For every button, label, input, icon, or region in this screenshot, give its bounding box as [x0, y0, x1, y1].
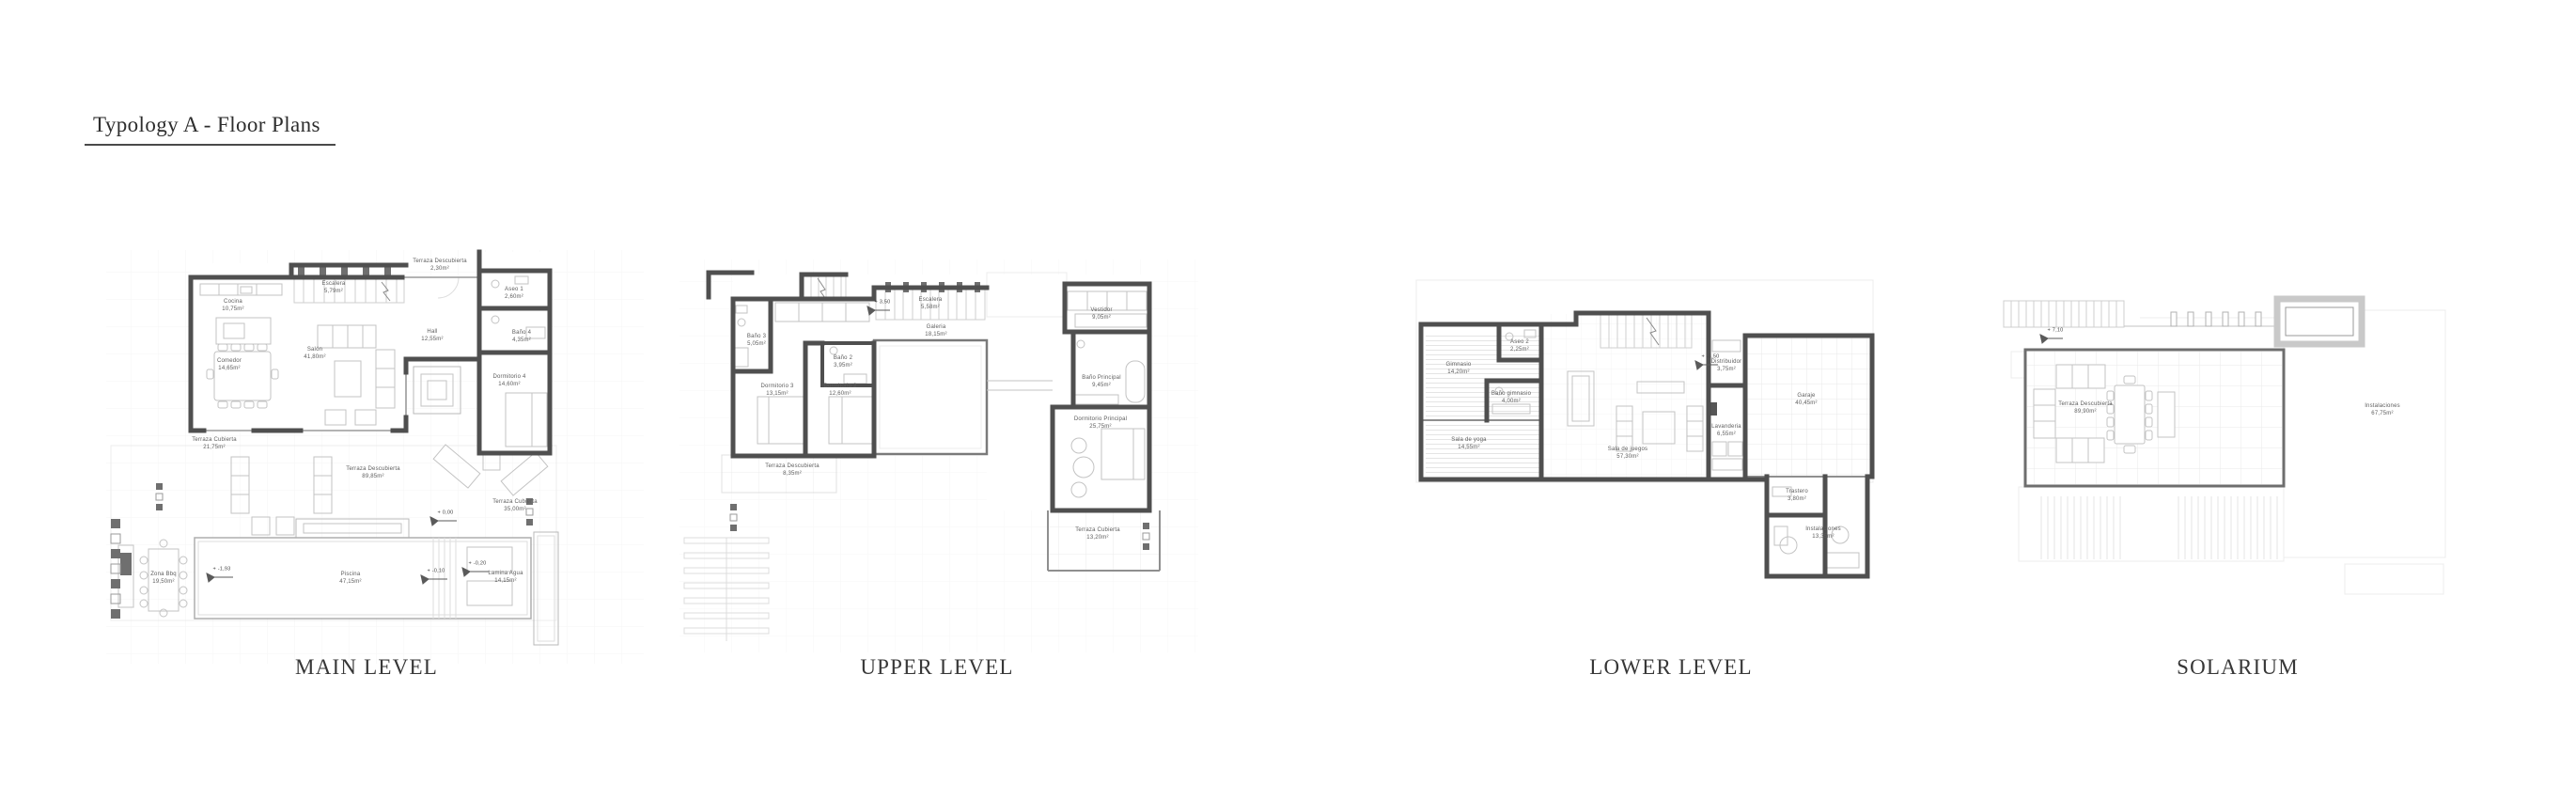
- room-name: Dormitorio 3: [760, 383, 793, 390]
- main-level-drawing: [103, 244, 648, 667]
- room-name: Terraza Descubierta: [346, 465, 400, 473]
- elevation-value: + -0,20: [469, 560, 487, 568]
- room-label: Escalera5,79m²: [322, 280, 346, 295]
- room-label: Baño Principal9,45m²: [1082, 374, 1121, 389]
- room-area: 21,75m²: [192, 444, 237, 451]
- room-name: Sala de juegos: [1608, 446, 1648, 453]
- room-label: Garaje40,45m²: [1795, 392, 1817, 407]
- room-name: Terraza Descubierta: [765, 463, 820, 470]
- room-area: 12,60m²: [823, 390, 856, 398]
- room-name: Dormitorio Principal: [1074, 416, 1127, 423]
- plan-solarium: Terraza Descubierta89,90m² Instalaciones…: [1992, 282, 2519, 602]
- room-name: Terraza Descubierta: [413, 258, 467, 265]
- room-label: Aseo 12,60m²: [505, 286, 523, 301]
- room-area: 18,15m²: [925, 331, 946, 338]
- room-area: 2,25m²: [1510, 346, 1529, 353]
- plan-upper-level: Baño 35,05m² Escalera5,58m² Galeria18,15…: [677, 254, 1203, 658]
- room-label: Baño 23,95m²: [834, 354, 852, 369]
- room-label: Salón41,80m²: [304, 346, 325, 361]
- room-label: Terraza Cubierta35,00m²: [492, 498, 538, 513]
- room-label: Instalaciones13,35m²: [1805, 525, 1841, 541]
- room-area: 13,35m²: [1805, 533, 1841, 541]
- elevation-mark: + 7,10: [2048, 327, 2064, 335]
- room-label: Zona Bbq19,50m²: [150, 571, 177, 586]
- room-area: 89,85m²: [346, 473, 400, 480]
- room-label: Lavanderia6,55m²: [1711, 423, 1741, 438]
- room-area: 14,20m²: [1446, 369, 1472, 376]
- room-label: Lamina Agua14,15m²: [488, 570, 523, 585]
- room-label: Vestidor9,05m²: [1090, 306, 1112, 322]
- room-name: Piscina: [339, 571, 361, 578]
- room-name: Baño Principal: [1082, 374, 1121, 382]
- room-name: Salón: [304, 346, 325, 353]
- room-name: Vestidor: [1090, 306, 1112, 314]
- room-label: Instalaciones67,75m²: [2365, 402, 2400, 417]
- room-name: Terraza Cubierta: [1075, 526, 1120, 534]
- room-area: 5,79m²: [322, 288, 346, 295]
- room-label: Terraza Cubierta13,20m²: [1075, 526, 1120, 541]
- elevation-mark: + -1,93: [213, 566, 231, 573]
- room-area: 4,00m²: [1491, 398, 1531, 405]
- elevation-value: + 0,00: [438, 510, 454, 517]
- room-name: Hall: [421, 328, 443, 336]
- room-area: 13,15m²: [760, 390, 793, 398]
- room-area: 2,30m²: [413, 265, 467, 273]
- room-label: Gimnasio14,20m²: [1446, 361, 1472, 376]
- room-name: Galeria: [925, 323, 946, 331]
- room-area: 41,80m²: [304, 353, 325, 361]
- room-area: 89,90m²: [2058, 408, 2113, 416]
- elevation-value: + -3,50: [1702, 353, 1720, 361]
- room-area: 19,50m²: [150, 578, 177, 586]
- room-name: Trastero: [1786, 488, 1808, 495]
- room-label: Hall12,55m²: [421, 328, 443, 343]
- room-area: 12,55m²: [421, 336, 443, 343]
- lower-level-drawing: [1400, 263, 1936, 592]
- room-name: Dormitorio 4: [492, 373, 525, 381]
- room-name: Comedor: [217, 357, 242, 365]
- room-name: Instalaciones: [1805, 525, 1841, 533]
- room-name: Gimnasio: [1446, 361, 1472, 369]
- room-label: Sala de juegos57,30m²: [1608, 446, 1648, 461]
- room-label: Piscina47,15m²: [339, 571, 361, 586]
- room-label: Trastero3,80m²: [1786, 488, 1808, 503]
- skylight-jacuzzi: [2277, 299, 2362, 344]
- room-label: Baño 44,35m²: [512, 329, 531, 344]
- elevation-value: + 7,10: [2048, 327, 2064, 335]
- room-label: Terraza Cubierta21,75m²: [192, 436, 237, 451]
- room-name: Terraza Cubierta: [192, 436, 237, 444]
- room-name: Cocina: [222, 298, 243, 306]
- room-name: Instalaciones: [2365, 402, 2400, 410]
- solarium-drawing: [1992, 282, 2519, 602]
- room-area: 6,55m²: [1711, 431, 1741, 438]
- room-name: Dormitorio 2: [823, 383, 856, 390]
- room-label: Dormitorio Principal25,75m²: [1074, 416, 1127, 431]
- room-area: 3,80m²: [1786, 495, 1808, 503]
- caption-lower-level: LOWER LEVEL: [1589, 655, 1753, 680]
- elevation-mark: + -0,10: [428, 568, 445, 575]
- elevation-value: + -1,93: [213, 566, 231, 573]
- void-over-salon: [874, 340, 987, 454]
- room-area: 14,15m²: [488, 577, 523, 585]
- room-area: 2,60m²: [505, 293, 523, 301]
- caption-main-level: MAIN LEVEL: [295, 655, 438, 680]
- room-label: Cocina10,75m²: [222, 298, 243, 313]
- elevation-mark: + -3,50: [1702, 353, 1720, 361]
- room-name: Garaje: [1795, 392, 1817, 400]
- caption-solarium: SOLARIUM: [2177, 655, 2299, 680]
- room-name: Lavanderia: [1711, 423, 1741, 431]
- room-area: 35,00m²: [492, 506, 538, 513]
- room-area: 14,60m²: [492, 381, 525, 388]
- room-name: Terraza Cubierta: [492, 498, 538, 506]
- floor-plans-sheet: Typology A - Floor Plans: [0, 0, 2576, 800]
- room-area: 67,75m²: [2365, 410, 2400, 417]
- room-area: 14,65m²: [217, 365, 242, 372]
- room-area: 9,05m²: [1090, 314, 1112, 322]
- room-label: Dormitorio 212,60m²: [823, 383, 856, 398]
- room-area: 3,95m²: [834, 362, 852, 369]
- upper-level-drawing: [677, 254, 1203, 658]
- elevation-value: + 3,50: [875, 299, 891, 306]
- room-area: 3,75m²: [1711, 366, 1742, 373]
- plan-main-level: Cocina10,75m² Escalera5,79m² Terraza Des…: [103, 244, 648, 667]
- room-area: 9,45m²: [1082, 382, 1121, 389]
- room-name: Lamina Agua: [488, 570, 523, 577]
- room-label: Baño 35,05m²: [747, 333, 766, 348]
- room-area: 5,58m²: [919, 304, 943, 311]
- room-name: Baño gimnasio: [1491, 390, 1531, 398]
- elevation-mark: + -0,20: [469, 560, 487, 568]
- room-label: Dormitorio 414,60m²: [492, 373, 525, 388]
- room-label: Dormitorio 313,15m²: [760, 383, 793, 398]
- room-name: Aseo 1: [505, 286, 523, 293]
- room-label: Galeria18,15m²: [925, 323, 946, 338]
- room-area: 5,05m²: [747, 340, 766, 348]
- room-area: 13,20m²: [1075, 534, 1120, 541]
- room-label: Terraza Descubierta2,30m²: [413, 258, 467, 273]
- room-label: Terraza Descubierta89,85m²: [346, 465, 400, 480]
- room-label: Baño gimnasio4,00m²: [1491, 390, 1531, 405]
- page-title: Typology A - Floor Plans: [85, 113, 336, 146]
- caption-upper-level: UPPER LEVEL: [860, 655, 1013, 680]
- room-name: Baño 3: [747, 333, 766, 340]
- room-area: 8,35m²: [765, 470, 820, 478]
- room-name: Baño 2: [834, 354, 852, 362]
- room-label: Comedor14,65m²: [217, 357, 242, 372]
- room-area: 47,15m²: [339, 578, 361, 586]
- elevation-mark: + 3,50: [875, 299, 891, 306]
- room-label: Terraza Descubierta8,35m²: [765, 463, 820, 478]
- room-area: 25,75m²: [1074, 423, 1127, 431]
- room-area: 40,45m²: [1795, 400, 1817, 407]
- room-name: Baño 4: [512, 329, 531, 337]
- room-area: 57,30m²: [1608, 453, 1648, 461]
- room-area: 14,55m²: [1451, 444, 1486, 451]
- plan-lower-level: Gimnasio14,20m² Aseo 22,25m² Baño gimnas…: [1400, 263, 1936, 592]
- elevation-value: + -0,10: [428, 568, 445, 575]
- room-area: 10,75m²: [222, 306, 243, 313]
- room-name: Escalera: [919, 296, 943, 304]
- room-name: Sala de yoga: [1451, 436, 1486, 444]
- room-name: Aseo 2: [1510, 338, 1529, 346]
- elevation-mark: + 0,00: [438, 510, 454, 517]
- room-name: Zona Bbq: [150, 571, 177, 578]
- room-label: Escalera5,58m²: [919, 296, 943, 311]
- room-label: Sala de yoga14,55m²: [1451, 436, 1486, 451]
- room-label: Terraza Descubierta89,90m²: [2058, 400, 2113, 416]
- room-name: Terraza Descubierta: [2058, 400, 2113, 408]
- room-name: Escalera: [322, 280, 346, 288]
- room-label: Aseo 22,25m²: [1510, 338, 1529, 353]
- room-area: 4,35m²: [512, 337, 531, 344]
